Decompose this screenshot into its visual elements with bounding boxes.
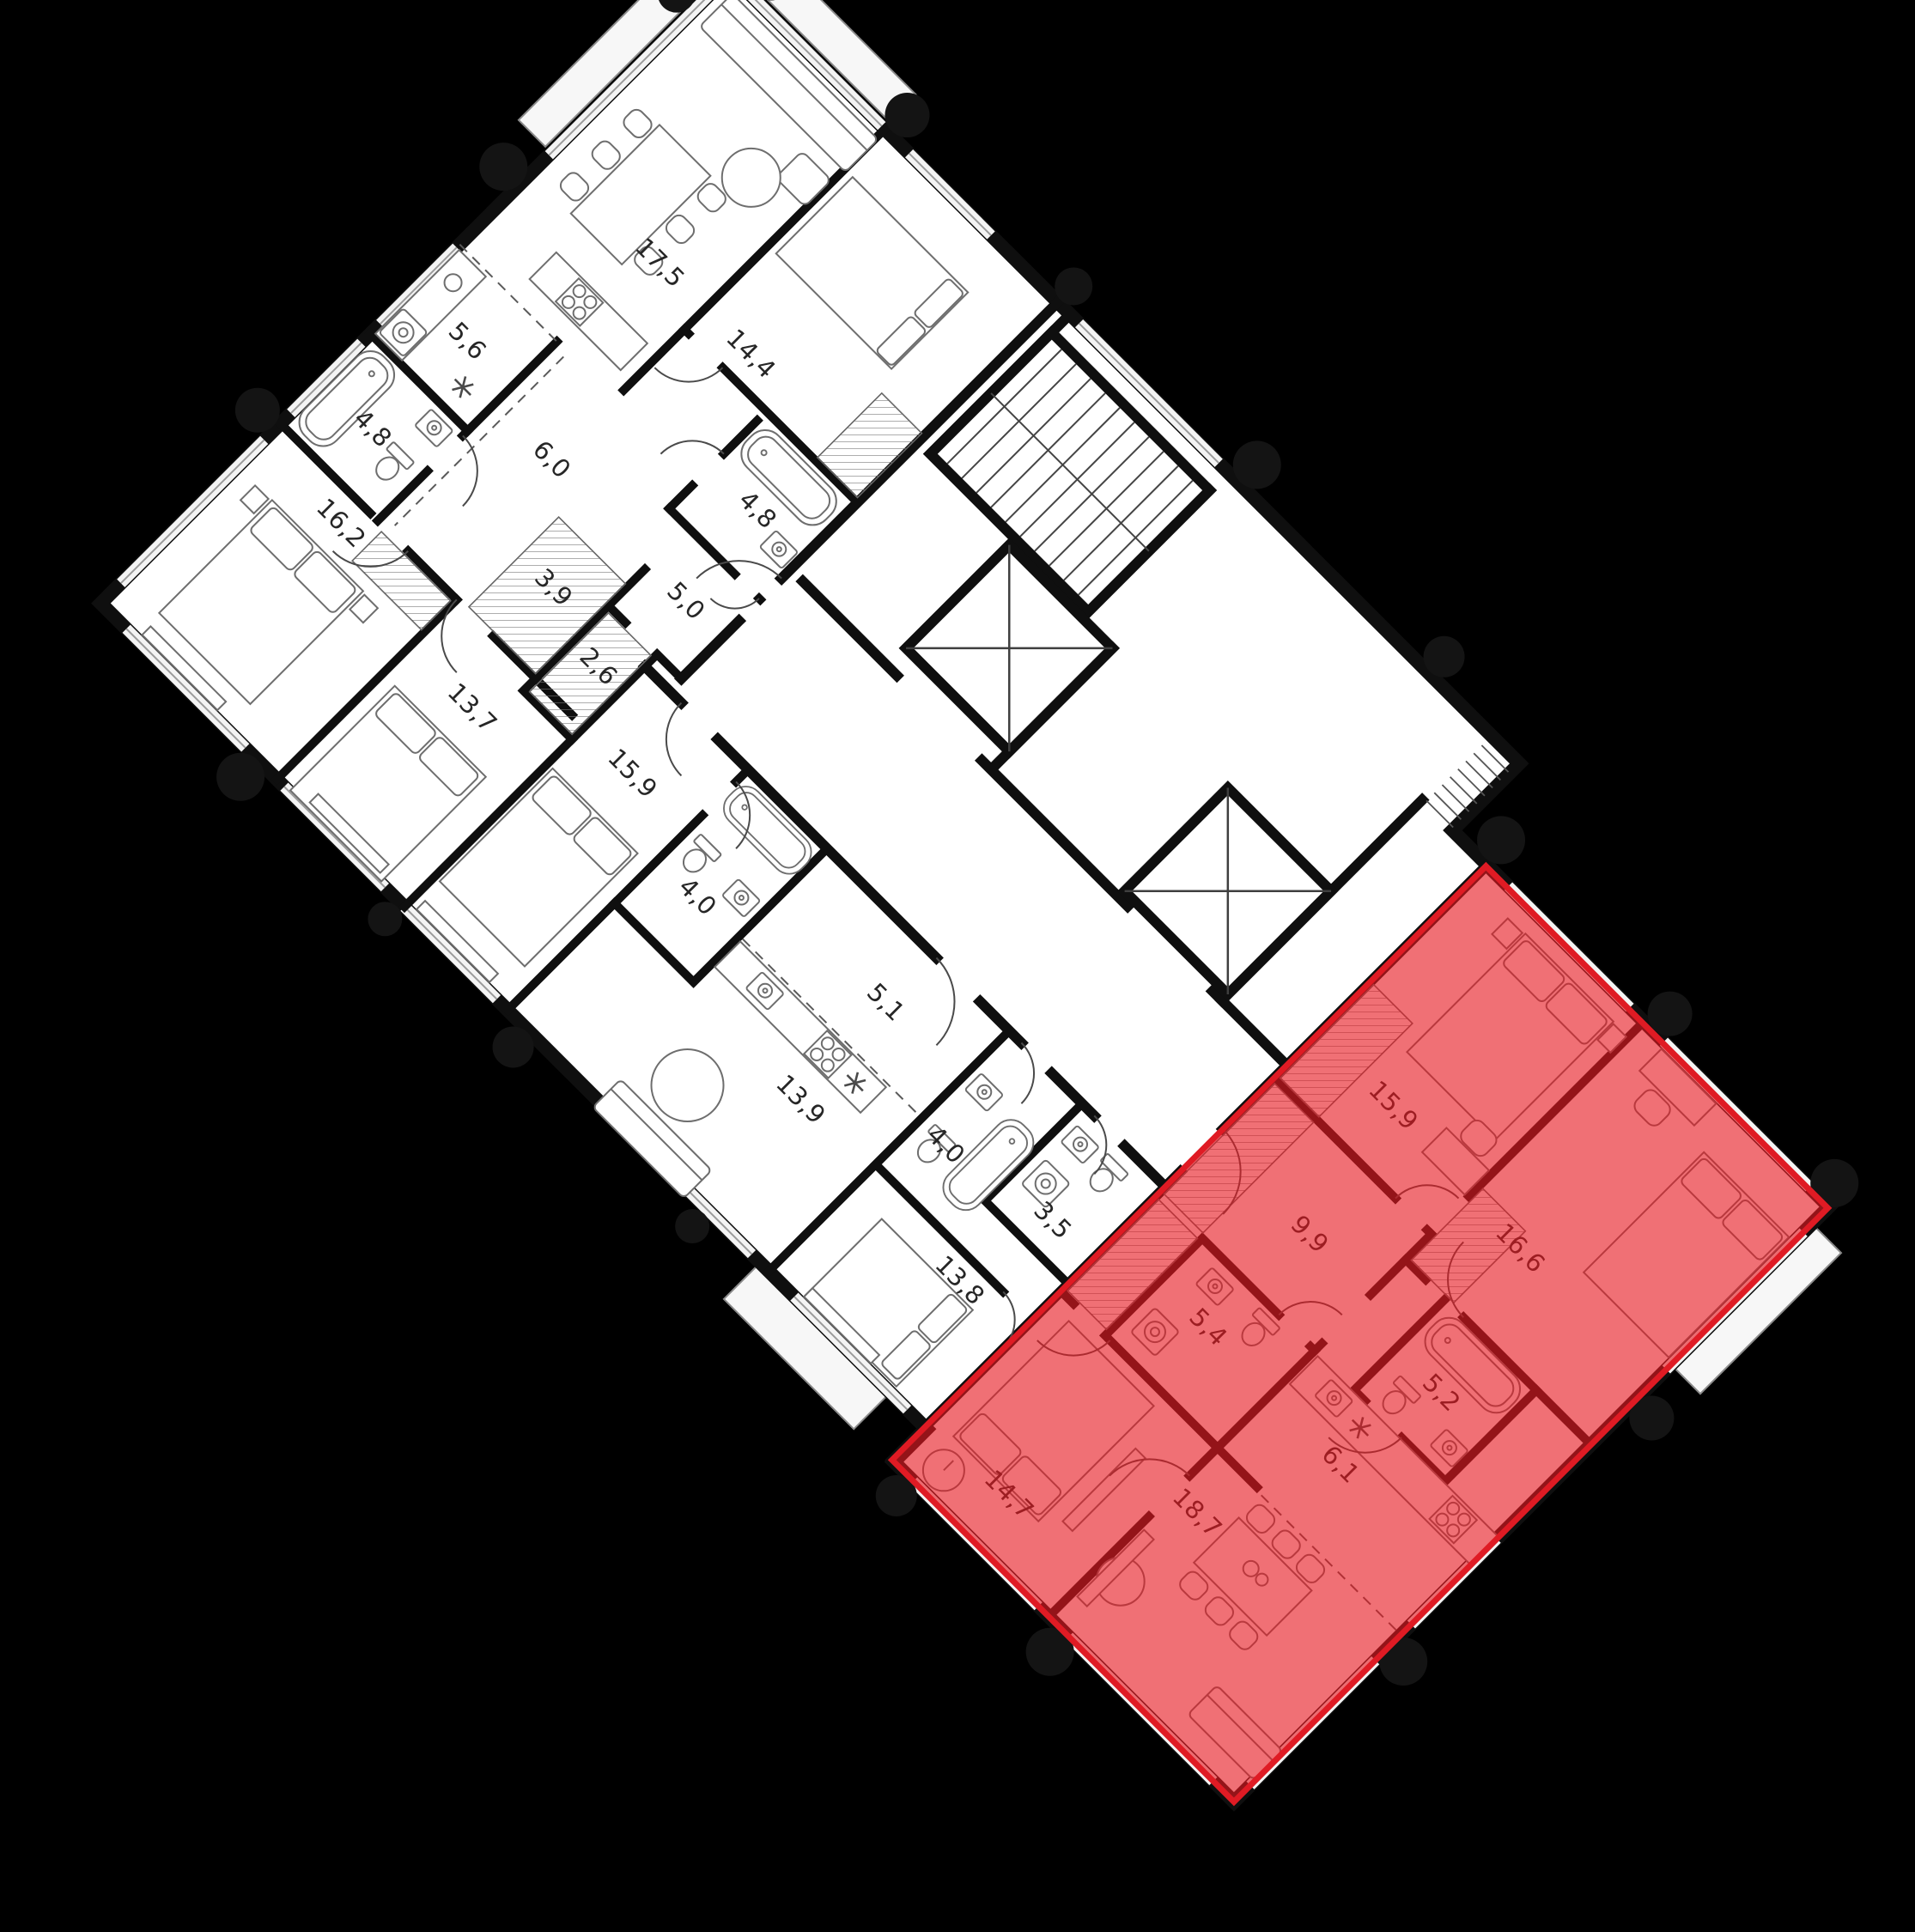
floorplan-svg: 17,5 5,6 4,8 6,0 14,4 4,8 5,0 3,9 2,6 16… [0,0,1915,1932]
floorplan-stage: 17,5 5,6 4,8 6,0 14,4 4,8 5,0 3,9 2,6 16… [0,0,1915,1932]
